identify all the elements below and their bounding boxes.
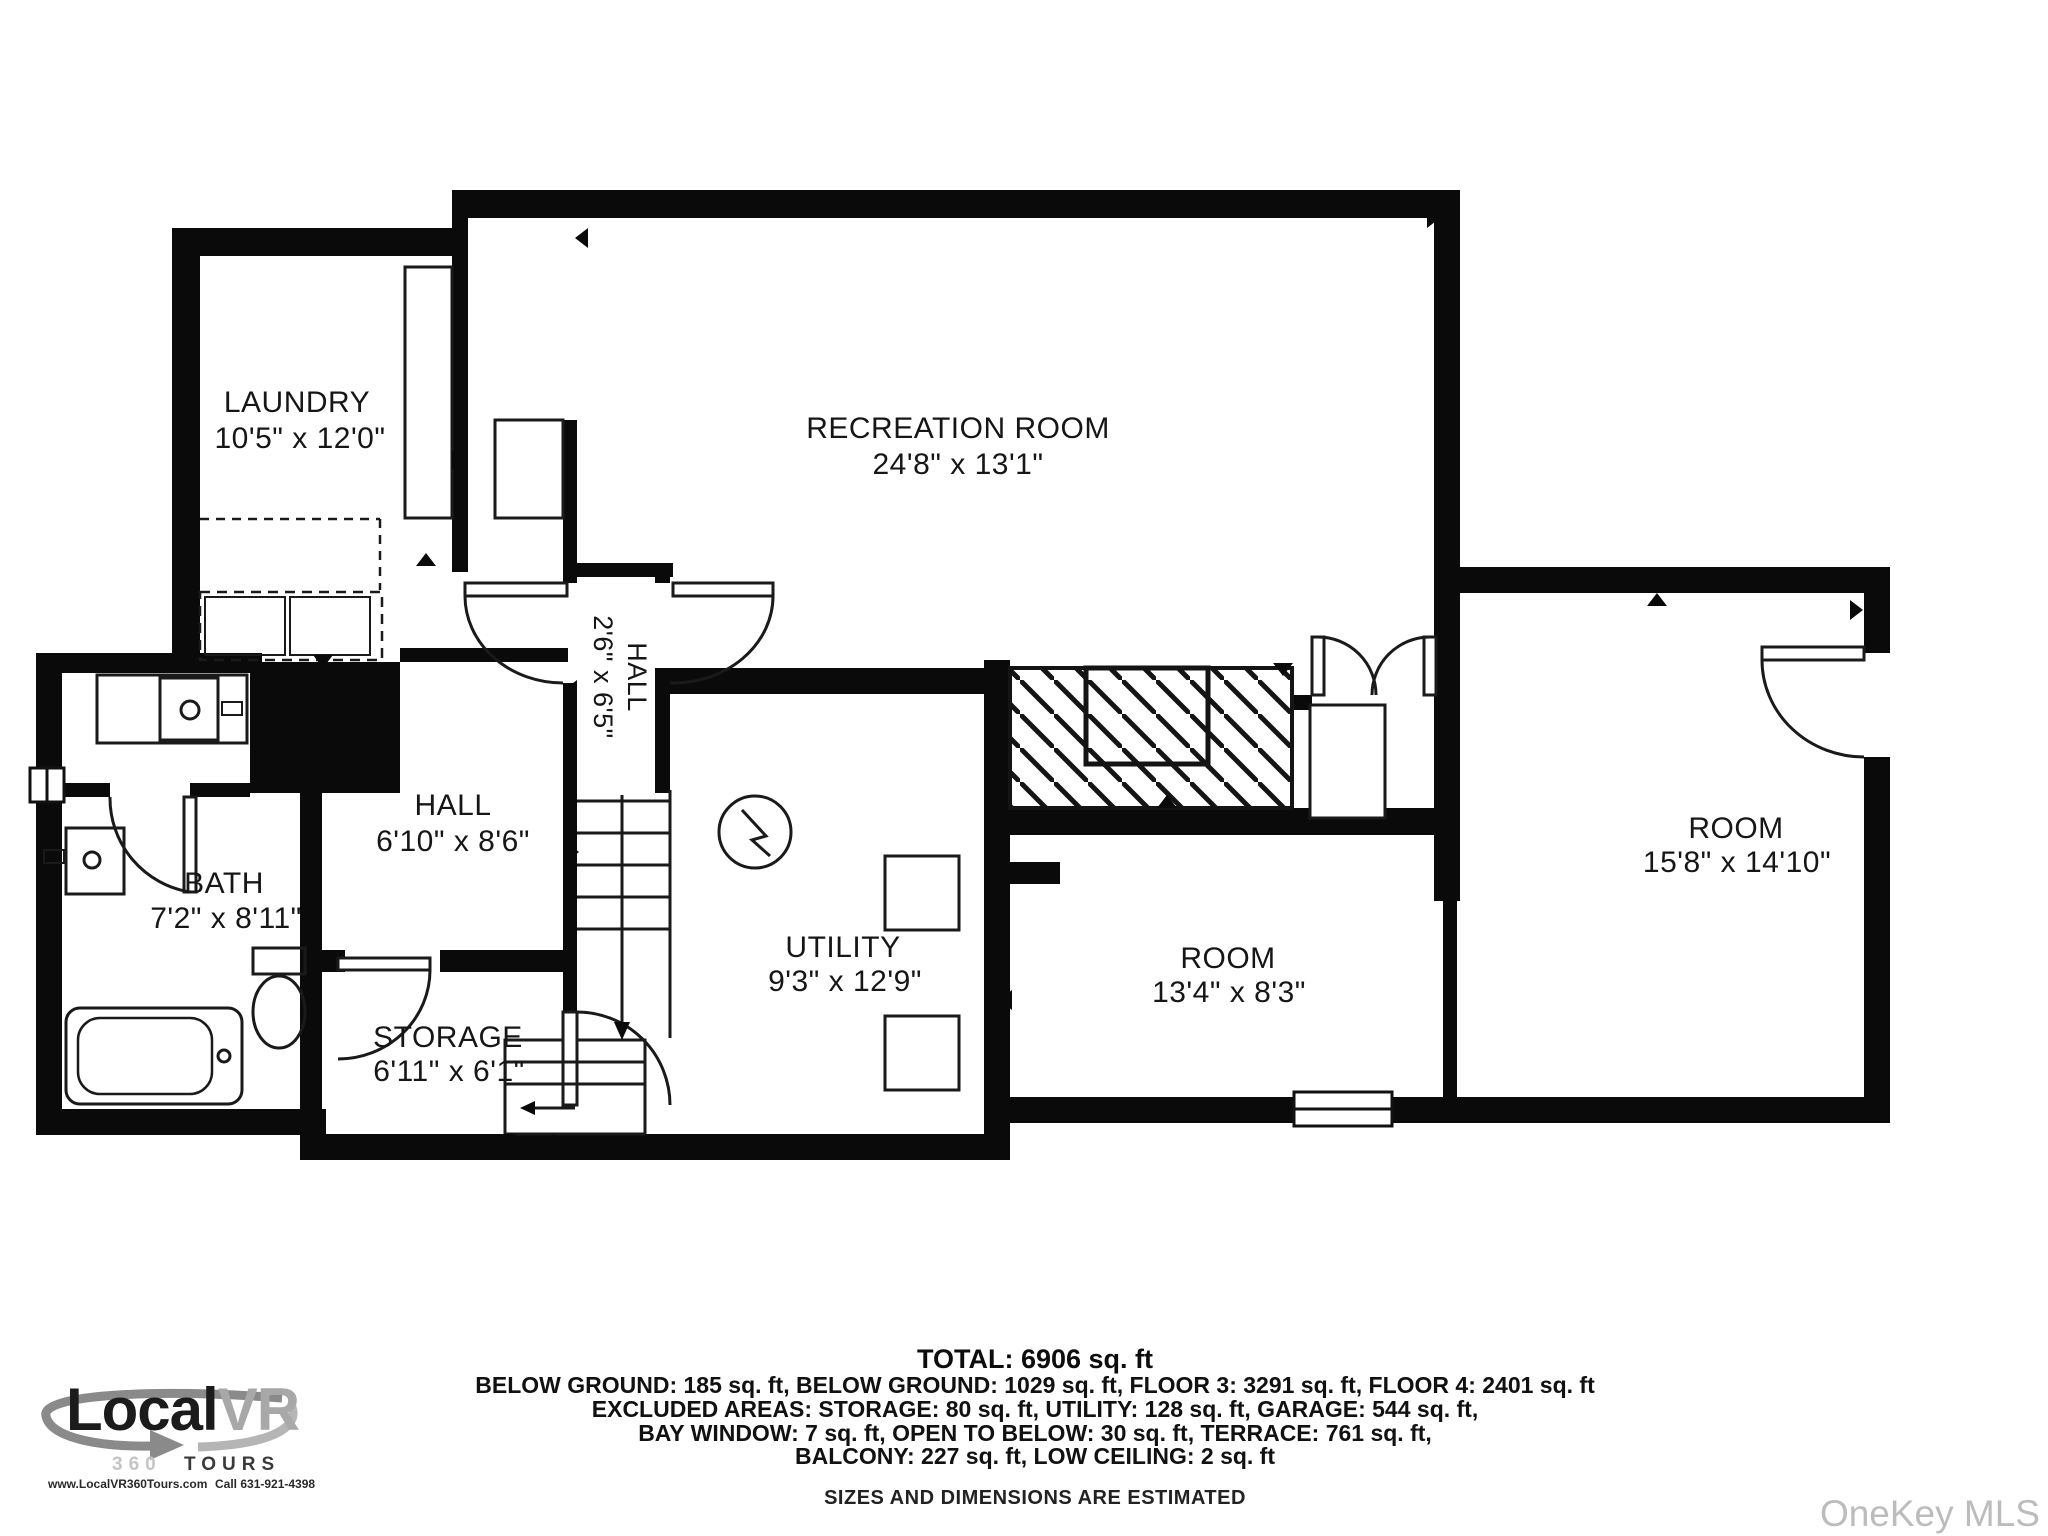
logo-local-text: Local xyxy=(66,1376,218,1443)
utility-equipment-1 xyxy=(885,856,959,930)
bath-vanity xyxy=(97,675,247,743)
label-storage-dims: 6'11" x 6'1" xyxy=(373,1055,525,1088)
logo-vr-text: VR xyxy=(218,1376,300,1443)
label-vhall-name: HALL xyxy=(622,642,652,712)
area-line-4: BALCONY: 227 sq. ft, LOW CEILING: 2 sq. … xyxy=(795,1443,1275,1469)
window-bath-left xyxy=(30,768,64,802)
label-recreation-name: RECREATION ROOM xyxy=(806,412,1110,445)
area-line-1: BELOW GROUND: 185 sq. ft, BELOW GROUND: … xyxy=(475,1372,1595,1398)
logo-360-text: 360 xyxy=(112,1454,162,1475)
window-bottom xyxy=(1294,1092,1392,1126)
walls xyxy=(36,190,1890,1160)
logo-phone-text: Call 631-921-4398 xyxy=(215,1477,315,1491)
hatched-area xyxy=(1010,668,1292,808)
label-bath-name: BATH xyxy=(184,867,264,900)
label-laundry-name: LAUNDRY xyxy=(224,386,370,419)
laundry-appliances xyxy=(200,519,382,660)
branding: LocalVR 360TOURS www.LocalVR360Tours.com… xyxy=(46,1376,316,1491)
label-room-center-name: ROOM xyxy=(1180,942,1275,975)
label-utility-name: UTILITY xyxy=(785,931,900,964)
area-line-2: EXCLUDED AREAS: STORAGE: 80 sq. ft, UTIL… xyxy=(592,1396,1478,1422)
svg-text:360TOURS: 360TOURS xyxy=(112,1454,280,1475)
label-vertical-hall: HALL 2'6" x 6'5" xyxy=(588,615,652,739)
label-room-right-dims: 15'8" x 14'10" xyxy=(1643,846,1831,879)
label-laundry-dims: 10'5" x 12'0" xyxy=(214,422,385,455)
area-summary: TOTAL: 6906 sq. ft BELOW GROUND: 185 sq.… xyxy=(475,1344,1595,1509)
door-hall-left xyxy=(465,583,567,683)
logo-tours-text: TOURS xyxy=(184,1454,280,1475)
label-utility-dims: 9'3" x 12'9" xyxy=(768,965,922,998)
total-area-text: TOTAL: 6906 sq. ft xyxy=(917,1344,1153,1374)
floorplan-image: LAUNDRY 10'5" x 12'0" RECREATION ROOM 24… xyxy=(0,0,2048,1536)
toilet xyxy=(253,948,305,1048)
label-recreation-dims: 24'8" x 13'1" xyxy=(872,448,1043,481)
label-vhall-dims: 2'6" x 6'5" xyxy=(588,615,618,739)
utility-equipment-2 xyxy=(885,1016,959,1090)
disclaimer-text: SIZES AND DIMENSIONS ARE ESTIMATED xyxy=(824,1487,1246,1509)
door-right-room xyxy=(1762,647,1864,757)
label-storage-name: STORAGE xyxy=(373,1021,523,1054)
logo-website-text: www.LocalVR360Tours.com xyxy=(47,1477,207,1491)
bathtub xyxy=(66,1008,242,1104)
floorplan-page: LAUNDRY 10'5" x 12'0" RECREATION ROOM 24… xyxy=(0,0,2048,1536)
door-closet-double xyxy=(1312,637,1436,695)
stairs-down-arrow xyxy=(614,1022,630,1040)
label-hall-dims: 6'10" x 8'6" xyxy=(376,825,530,858)
label-hall-name: HALL xyxy=(414,789,491,822)
onekey-mls-watermark: OneKey MLS xyxy=(1820,1493,2040,1534)
label-bath-dims: 7'2" x 8'11" xyxy=(150,902,302,935)
label-room-center-dims: 13'4" x 8'3" xyxy=(1152,976,1306,1009)
svg-text:LocalVR: LocalVR xyxy=(66,1376,300,1443)
label-room-right-name: ROOM xyxy=(1688,812,1783,845)
utility-water-heater xyxy=(719,796,791,868)
